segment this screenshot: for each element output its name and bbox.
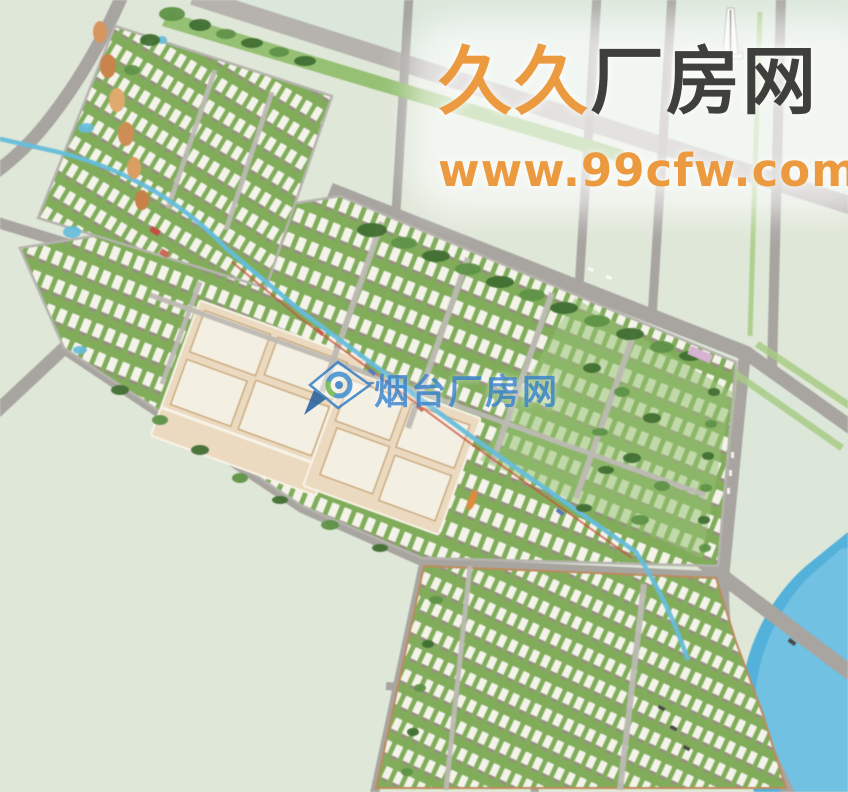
- watermark-brand-prefix: 久久: [438, 39, 590, 125]
- watermark-brand: 久久厂房网: [438, 44, 848, 122]
- watermark-center: 烟台厂房网: [302, 360, 559, 418]
- watermark-top: 久久厂房网 www.99cfw.com: [438, 44, 848, 197]
- watermark-url: www.99cfw.com: [438, 144, 848, 197]
- pond: [78, 123, 94, 133]
- watermark-brand-suffix: 厂房网: [590, 39, 818, 125]
- pond: [63, 226, 81, 238]
- screenshot-root: 久久厂房网 www.99cfw.com 烟台厂房网: [0, 0, 848, 792]
- magnifier-diamond-logo: [302, 360, 374, 418]
- watermark-center-text: 烟台厂房网: [374, 364, 559, 415]
- pond: [73, 346, 87, 354]
